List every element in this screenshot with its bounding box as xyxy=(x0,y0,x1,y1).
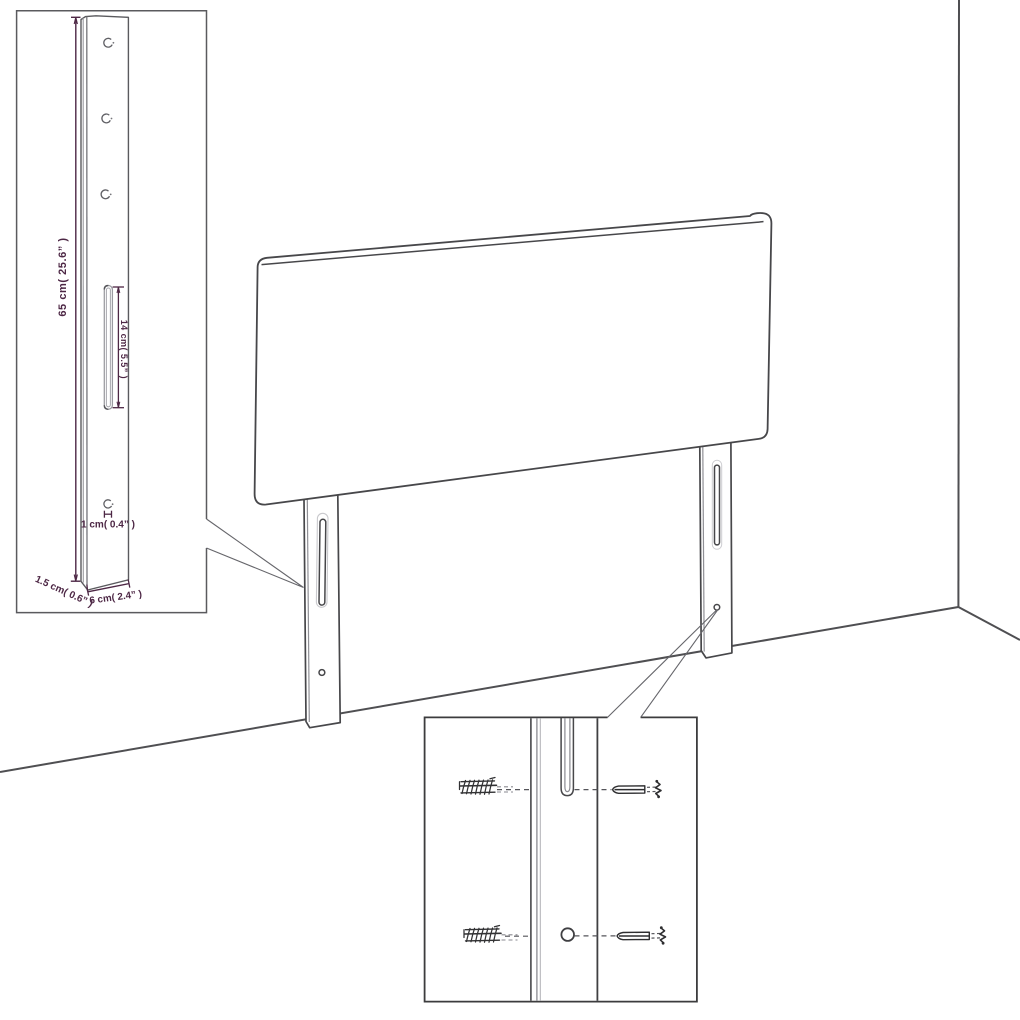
svg-text:1 cm( 0.4” ): 1 cm( 0.4” ) xyxy=(81,520,135,531)
svg-text:14 cm( 5.5” ): 14 cm( 5.5” ) xyxy=(119,320,129,379)
svg-text:65 cm( 25.6” ): 65 cm( 25.6” ) xyxy=(57,237,69,316)
